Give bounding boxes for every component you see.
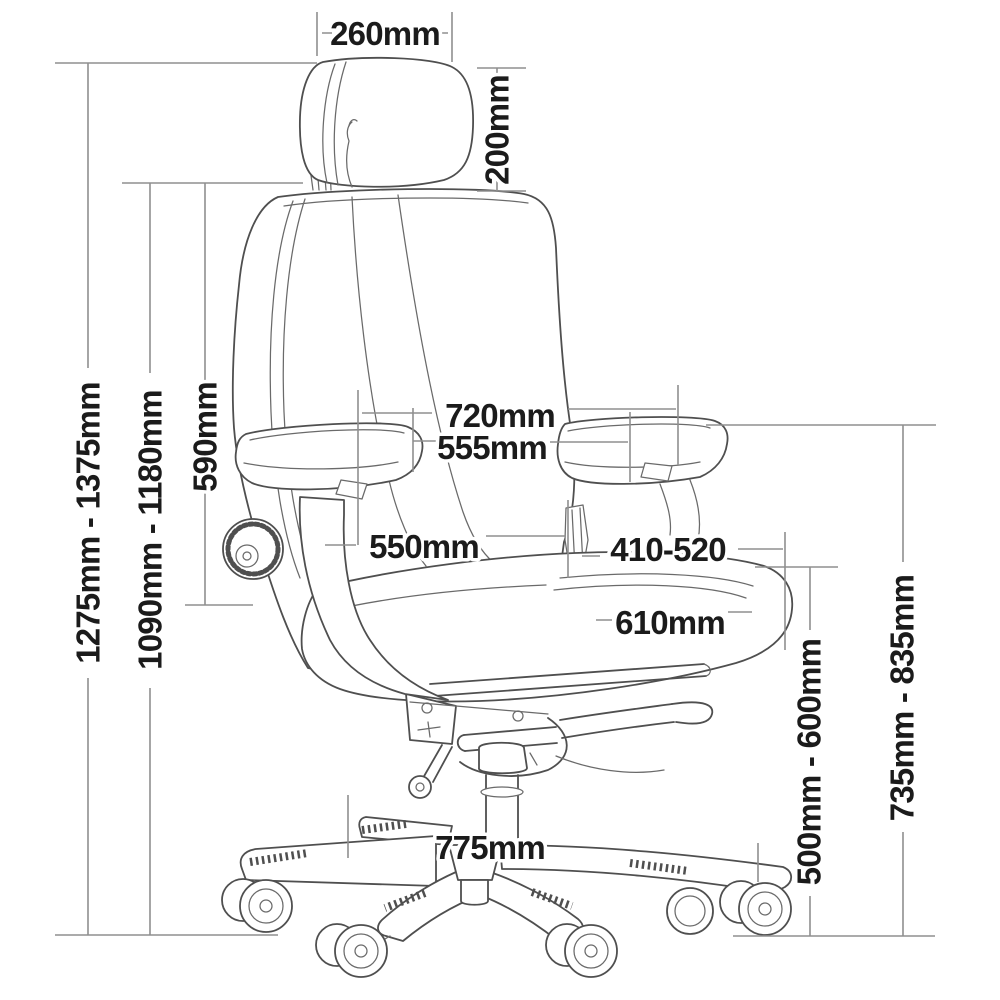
label-armrest-inner-span: 555mm <box>437 429 547 466</box>
label-base-width: 775mm <box>435 829 545 866</box>
label-backrest-height: 590mm <box>187 382 224 492</box>
label-underseat-height-range: 500mm - 600mm <box>791 639 828 885</box>
chair-dimension-diagram-svg: 260mm 200mm 1275mm - 1375mm 1090mm - 118… <box>0 0 1000 1000</box>
label-headrest-height: 200mm <box>479 75 516 185</box>
label-seat-height-range: 410-520 <box>610 531 726 568</box>
chair-dimension-diagram: 260mm 200mm 1275mm - 1375mm 1090mm - 118… <box>0 0 1000 1000</box>
caster-right <box>720 881 791 935</box>
headrest <box>300 58 473 190</box>
label-seat-depth: 610mm <box>615 604 725 641</box>
label-overall-height-range: 1275mm - 1375mm <box>70 382 107 664</box>
label-armrest-height-range: 735mm - 835mm <box>884 575 921 821</box>
caster-front-right <box>546 924 617 977</box>
label-headrest-width: 260mm <box>330 15 440 52</box>
label-seat-width: 550mm <box>369 528 479 565</box>
label-backrest-top-height-range: 1090mm - 1180mm <box>132 390 169 670</box>
caster-front-left <box>316 924 390 977</box>
caster-left <box>222 879 292 932</box>
caster-back-right <box>667 888 713 934</box>
